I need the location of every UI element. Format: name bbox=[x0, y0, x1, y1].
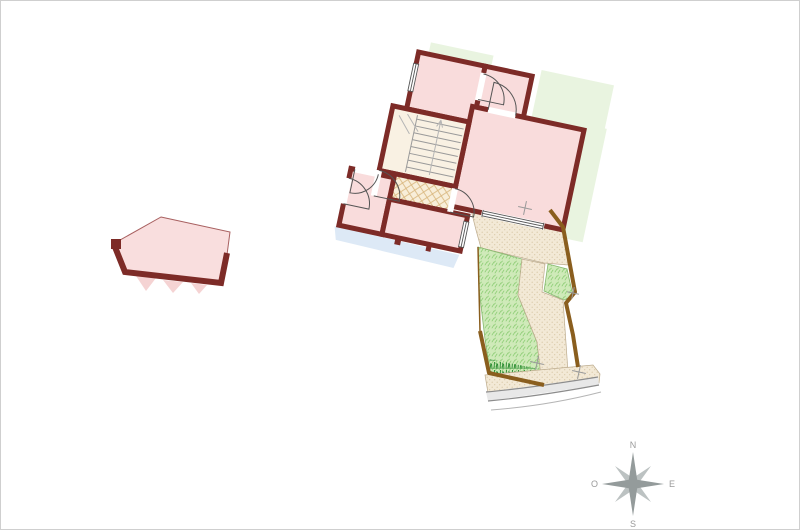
annex-shadow-marks bbox=[191, 283, 207, 294]
compass-label-south: S bbox=[630, 519, 636, 529]
room-living bbox=[451, 106, 584, 229]
chimney-tick bbox=[394, 238, 401, 245]
site-plan-drawing: N S E O bbox=[1, 1, 800, 530]
annex-shadow-marks bbox=[163, 280, 183, 293]
compass-label-west: O bbox=[591, 479, 598, 489]
annex-building bbox=[111, 217, 230, 294]
annex-corner-post bbox=[111, 239, 121, 249]
site-plan-page: N S E O bbox=[0, 0, 800, 530]
compass-cardinal-points bbox=[602, 452, 664, 516]
compass-label-east: E bbox=[669, 479, 675, 489]
compass-label-north: N bbox=[630, 440, 637, 450]
compass-rose: N S E O bbox=[591, 440, 675, 529]
annex-shadow-marks bbox=[136, 276, 156, 291]
